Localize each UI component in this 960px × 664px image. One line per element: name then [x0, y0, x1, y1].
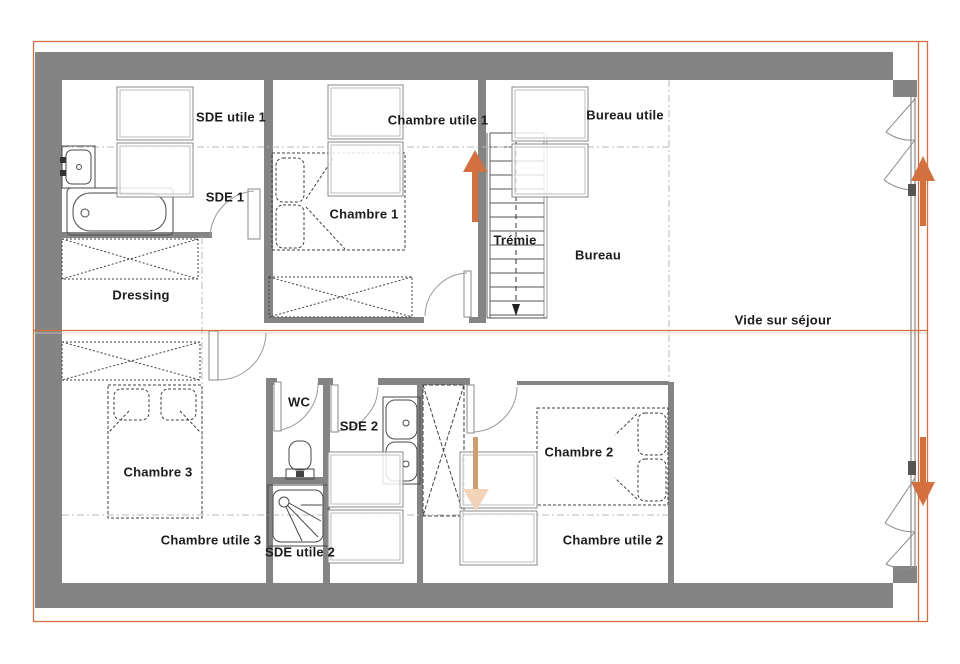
- wall-shower-top: [266, 477, 330, 484]
- wardrobe-chambre-1: [269, 277, 412, 317]
- pillow: [276, 205, 304, 248]
- wardrobe-dressing: [62, 239, 198, 279]
- washbasin-sde-1: [60, 146, 95, 188]
- room-label-sde-1: SDE 1: [206, 190, 245, 205]
- room-label-chambre-utile-2: Chambre utile 2: [563, 533, 664, 548]
- window-handle: [908, 461, 916, 475]
- closet-chambre-2: [423, 385, 464, 516]
- room-label-bureau-utile: Bureau utile: [586, 108, 664, 123]
- wall-chambre2-right: [668, 382, 674, 583]
- room-label-vide-sur-sejour: Vide sur séjour: [735, 313, 832, 328]
- stair-down-arrow-icon: [512, 304, 520, 316]
- pillow: [276, 158, 304, 202]
- faucet: [60, 157, 66, 163]
- floor-plan-drawing: [0, 0, 960, 664]
- doors: [209, 189, 517, 433]
- room-label-sde-2: SDE 2: [340, 419, 379, 434]
- door-chambre-3: [209, 331, 266, 380]
- room-label-tremie: Trémie: [493, 233, 536, 248]
- roof-window-bureau-utile: [512, 87, 588, 197]
- door-chambre-2: [467, 385, 517, 433]
- room-label-chambre-2: Chambre 2: [545, 445, 614, 460]
- pillow: [161, 389, 196, 420]
- room-label-chambre-1: Chambre 1: [330, 207, 399, 222]
- door-chambre-1: [425, 271, 471, 317]
- room-label-wc: WC: [288, 395, 310, 410]
- roof-window-chambre-utile-2: [460, 452, 537, 565]
- wall-corridor-north-2: [469, 317, 486, 323]
- bed-chambre-3: [108, 385, 202, 518]
- pillow: [638, 459, 666, 501]
- room-label-bureau: Bureau: [575, 248, 621, 263]
- room-label-chambre-utile-1: Chambre utile 1: [388, 113, 489, 128]
- wall-step-top-right: [893, 80, 917, 97]
- room-label-sde-utile-1: SDE utile 1: [196, 110, 266, 125]
- floor-plan: SDE utile 1 Chambre utile 1 Bureau utile…: [0, 0, 960, 664]
- wall-chambre2-north: [517, 381, 668, 385]
- window-handle: [908, 184, 916, 196]
- wardrobe-chambre-3: [62, 342, 200, 380]
- room-label-sde-utile-2: SDE utile 2: [265, 545, 335, 560]
- wall-exterior-top: [35, 52, 893, 80]
- roof-window-sde-utile-1: [117, 87, 193, 197]
- room-label-dressing: Dressing: [112, 288, 169, 303]
- roof-windows: [117, 85, 588, 565]
- pillow: [638, 413, 666, 455]
- room-label-chambre-3: Chambre 3: [124, 465, 193, 480]
- wall-corridor-north: [264, 317, 424, 323]
- wall-corridor-south-2: [318, 378, 333, 385]
- roof-window-sde-utile-2: [328, 452, 403, 563]
- wall-corridor-south-3: [378, 378, 470, 385]
- faucet: [60, 170, 66, 176]
- roof-window-chambre-utile-1: [328, 85, 403, 196]
- toilet: [286, 441, 314, 479]
- wall-exterior-bottom: [35, 583, 893, 608]
- room-label-chambre-utile-3: Chambre utile 3: [161, 533, 262, 548]
- pillow: [114, 389, 149, 420]
